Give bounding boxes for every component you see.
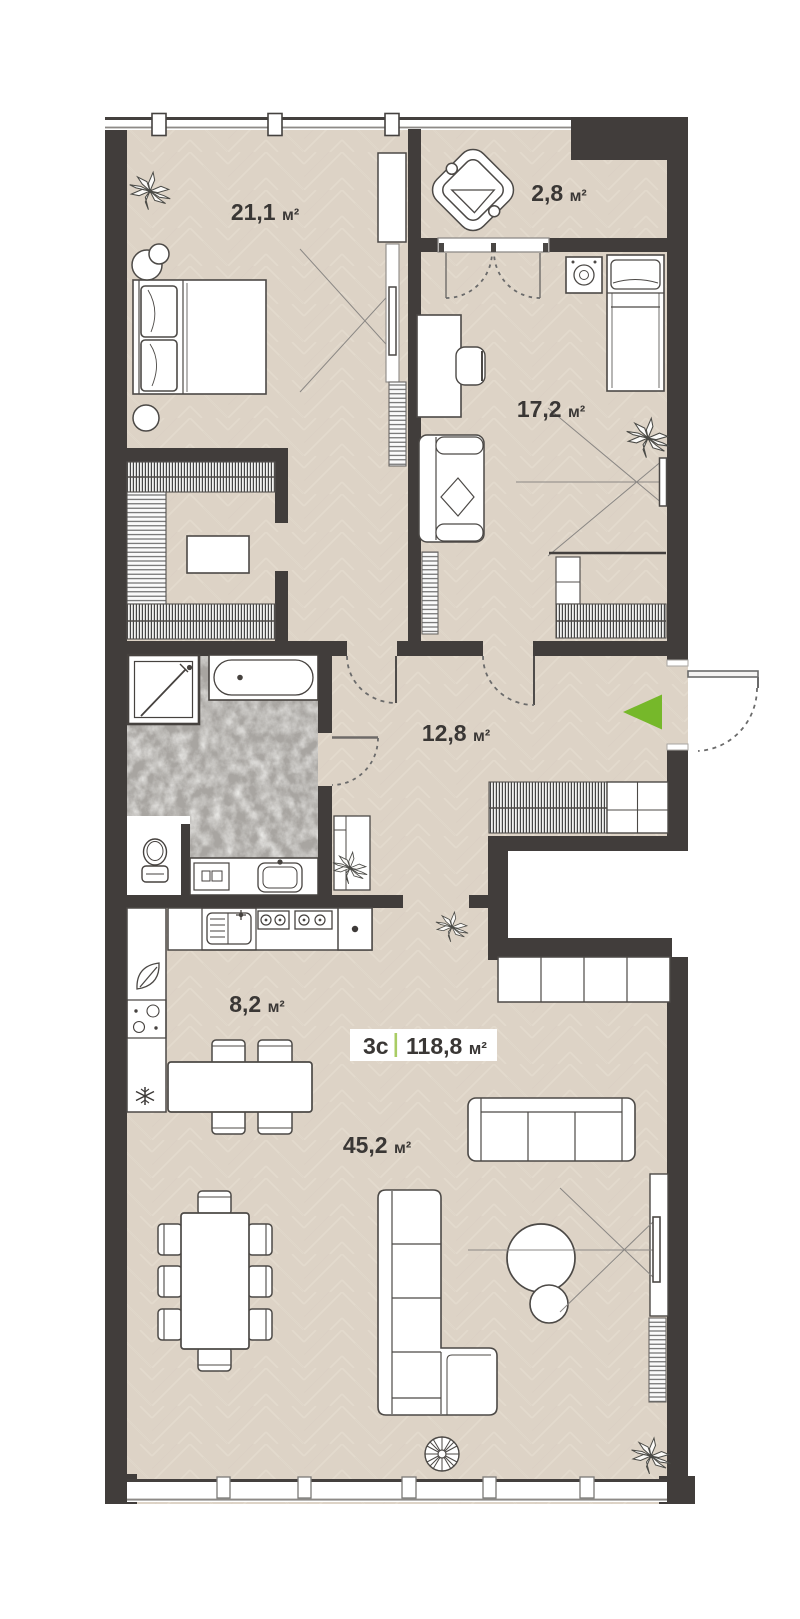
svg-text:3c: 3c (363, 1033, 389, 1059)
